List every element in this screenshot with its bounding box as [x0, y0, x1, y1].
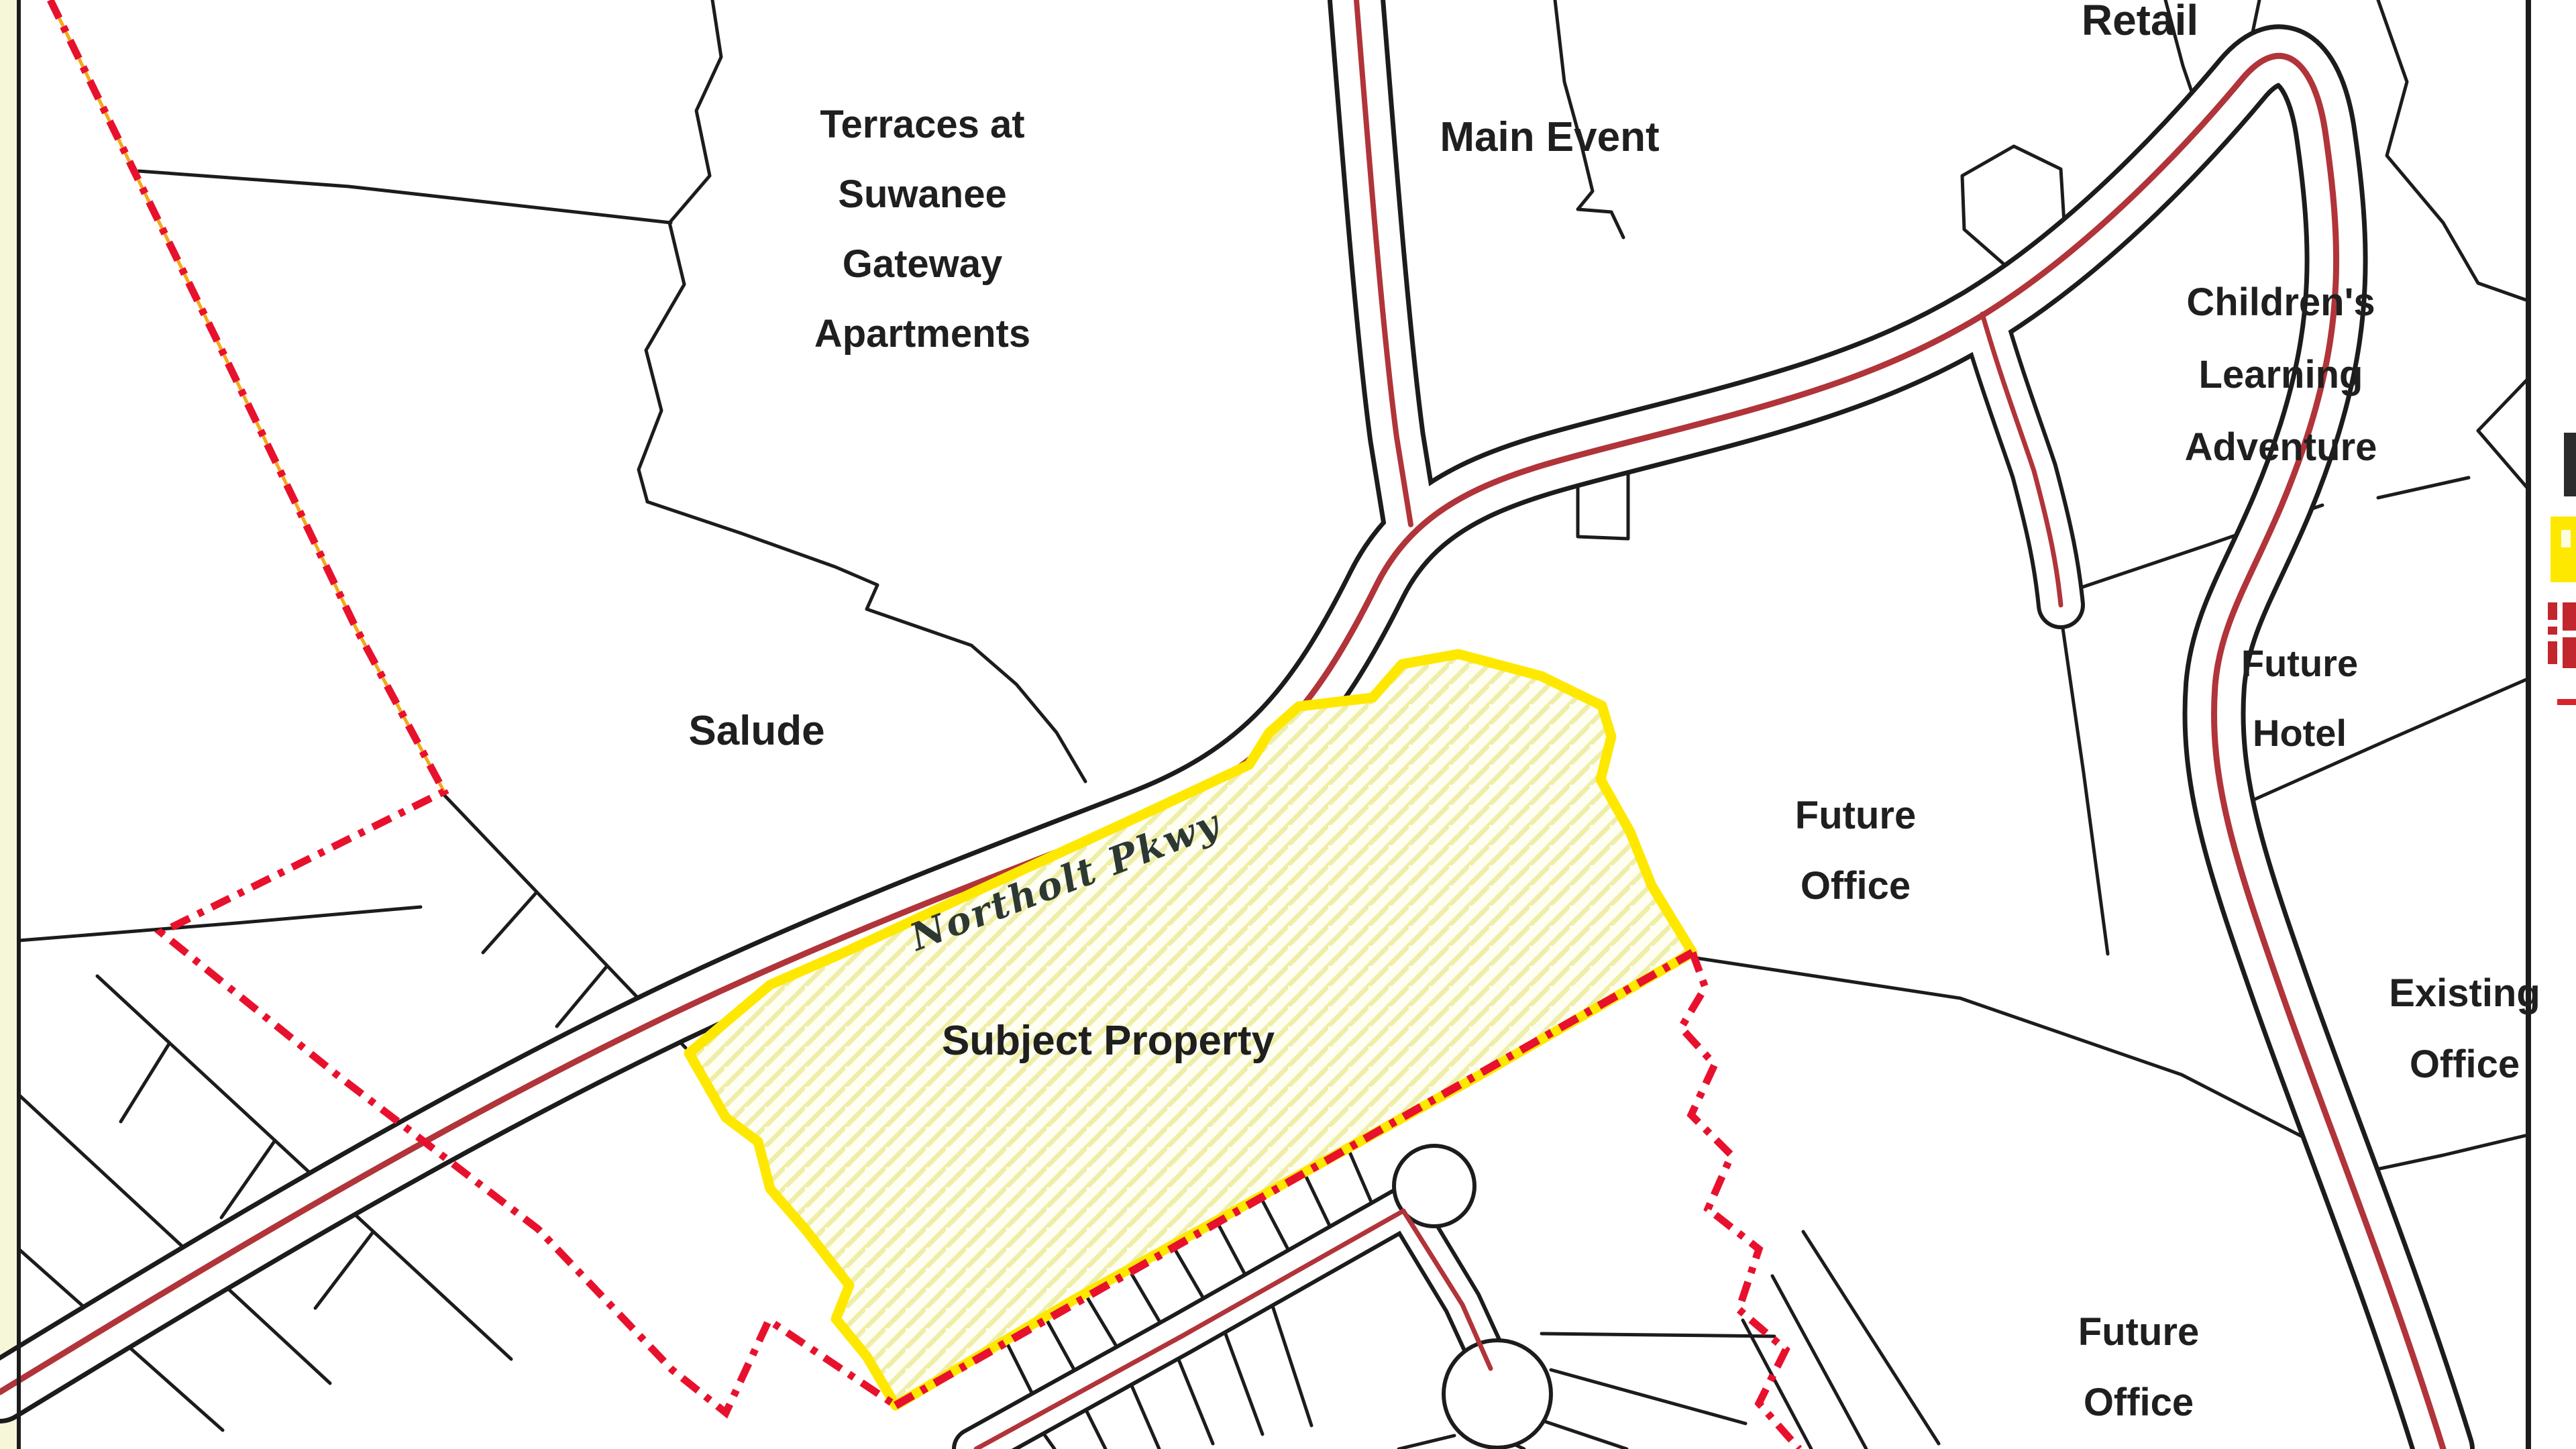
label-future-office-south-line1: Future — [2078, 1310, 2199, 1354]
legend-subject-property-swatch-mark — [2561, 530, 2571, 547]
paper-left-margin — [0, 0, 17, 1449]
label-retail: Retail — [2082, 0, 2198, 44]
legend-subject-property-swatch — [2551, 517, 2576, 582]
label-childrens-line1: Children's — [2186, 280, 2375, 324]
label-future-office-center-line2: Office — [1801, 864, 1911, 908]
label-terraces-line1: Terraces at — [820, 103, 1024, 146]
label-main-event: Main Event — [1440, 114, 1659, 160]
legend-road-line-swatch — [2557, 699, 2576, 705]
label-salude: Salude — [688, 708, 824, 754]
label-future-hotel-line1: Future — [2241, 642, 2358, 684]
legend-black-swatch — [2564, 433, 2576, 496]
label-terraces-line2: Suwanee — [838, 172, 1006, 216]
cul-de-sac-south — [1444, 1340, 1551, 1448]
label-childrens-line2: Learning — [2199, 353, 2363, 396]
label-future-office-center-line1: Future — [1795, 794, 1916, 837]
label-future-hotel-line2: Hotel — [2253, 712, 2347, 754]
label-terraces-line4: Apartments — [814, 312, 1030, 356]
label-childrens-line3: Adventure — [2185, 425, 2377, 469]
label-subject-property: Subject Property — [942, 1018, 1275, 1064]
label-existing-office-line2: Office — [2410, 1042, 2520, 1086]
map-canvas: Retail Terraces at Suwanee Gateway Apart… — [0, 0, 2576, 1449]
label-terraces-line3: Gateway — [843, 242, 1003, 286]
zoning-map: Retail Terraces at Suwanee Gateway Apart… — [0, 0, 2576, 1449]
label-future-office-south-line2: Office — [2084, 1381, 2194, 1424]
label-existing-office-line1: Existing — [2389, 971, 2540, 1015]
